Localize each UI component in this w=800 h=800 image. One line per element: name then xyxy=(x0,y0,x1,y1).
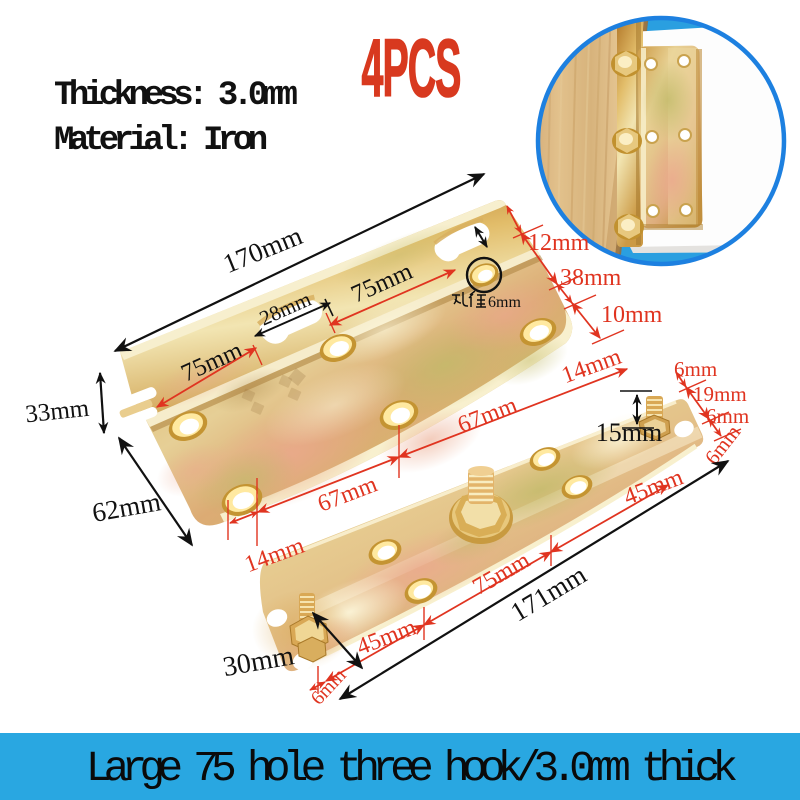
svg-text:4PCS: 4PCS xyxy=(362,22,461,114)
svg-text:Large 75 hole three hook/3.0mm: Large 75 hole three hook/3.0mm thick xyxy=(86,744,737,793)
svg-text:6mm: 6mm xyxy=(488,294,521,311)
svg-text:10mm: 10mm xyxy=(601,302,663,328)
svg-text:Thickness: 3.0mm: Thickness: 3.0mm xyxy=(54,77,298,115)
svg-text:Material: Iron: Material: Iron xyxy=(54,122,267,160)
svg-text:19mm: 19mm xyxy=(693,382,747,406)
svg-text:15mm: 15mm xyxy=(596,418,662,447)
svg-text:38mm: 38mm xyxy=(560,265,622,291)
svg-text:12mm: 12mm xyxy=(528,230,590,256)
svg-text:6mm: 6mm xyxy=(674,357,717,381)
